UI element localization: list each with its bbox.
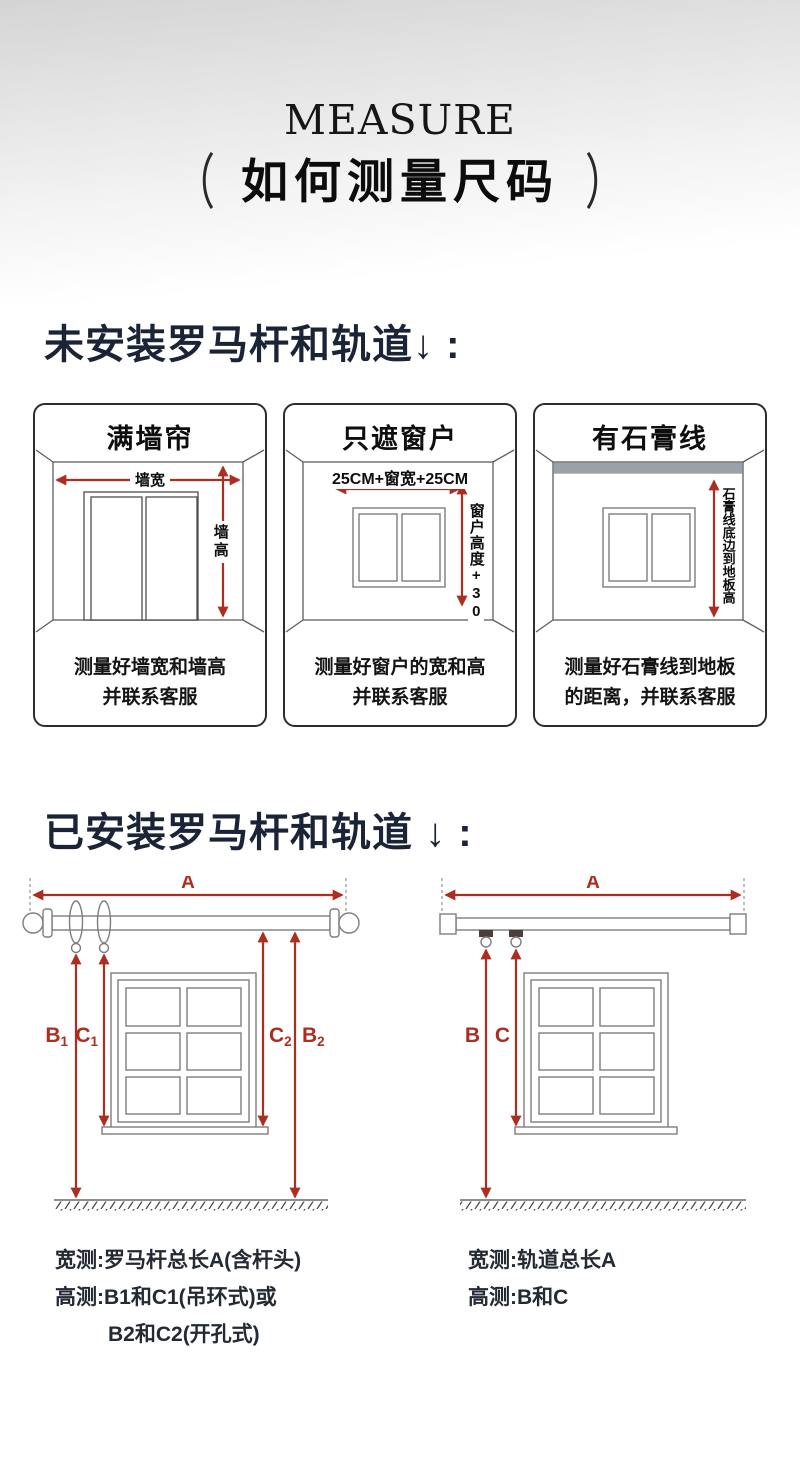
section2-heading: 已安装罗马杆和轨道 ↓ : [44, 800, 473, 858]
note-line: 宽测:罗马杆总长A(含杆头) [55, 1242, 301, 1279]
window-pane [539, 988, 593, 1026]
wall-height-label: 墙高 [212, 521, 228, 563]
box-caption: 测量好石膏线到地板 的距离，并联系客服 [535, 653, 765, 713]
box-caption: 测量好窗户的宽和高 并联系客服 [285, 653, 515, 713]
caption-line: 并联系客服 [285, 683, 515, 713]
window-pane [539, 1033, 593, 1070]
plaster-line-bar [554, 463, 743, 474]
window-width-label-row: 25CM+窗宽+25CM [285, 465, 515, 489]
window-pane [187, 988, 241, 1026]
box-full-wall-curtain: 满墙帘 墙宽 墙高 测量好墙宽和墙高 并联系客服 [33, 403, 267, 727]
corner-line [243, 620, 264, 632]
rod-right-finial [339, 913, 359, 933]
c-label: C [495, 1024, 510, 1047]
note-line: 高测:B和C [468, 1279, 616, 1316]
page-title: 如何测量尺码 [241, 143, 559, 212]
b2-label: B2 [302, 1024, 325, 1049]
window-pane [126, 1077, 180, 1114]
track-glider [479, 930, 493, 937]
eyebrow-text: MEASURE [0, 96, 800, 144]
measure-option-boxes: 满墙帘 墙宽 墙高 测量好墙宽和墙高 并联系客服 [33, 403, 767, 727]
rod-measure-notes: 宽测:罗马杆总长A(含杆头) 高测:B1和C1(吊环式)或 B2和C2(开孔式) [55, 1242, 301, 1353]
caption-line: 测量好墙宽和墙高 [35, 653, 265, 683]
door-left-panel [91, 497, 142, 620]
box-caption: 测量好墙宽和墙高 并联系客服 [35, 653, 265, 713]
wall-width-label: 墙宽 [130, 469, 170, 490]
track-measure-notes: 宽测:轨道总长A 高测:B和C [468, 1242, 616, 1316]
window-sill [102, 1127, 268, 1134]
rod-left-finial [23, 913, 43, 933]
window-pane [126, 1033, 180, 1070]
glider-ring [481, 937, 491, 947]
window-pane [187, 1033, 241, 1070]
section1-heading: 未安装罗马杆和轨道↓ : [44, 312, 460, 370]
window-sill [515, 1127, 677, 1134]
measure-guide-page: MEASURE （ 如何测量尺码 ） 未安装罗马杆和轨道↓ : 满墙帘 [0, 0, 800, 1476]
window-pane [539, 1077, 593, 1114]
rod-right-disc [330, 909, 339, 937]
corner-line [493, 620, 514, 632]
window-height-label: 窗户高度+30 [468, 500, 484, 624]
caption-line: 的距离，并联系客服 [535, 683, 765, 713]
box-plaster-line: 有石膏线 石膏线底边到地板高 测量好石膏线到地板 的距离，并联系客服 [533, 403, 767, 727]
window-pane [600, 1077, 654, 1114]
window-right-pane [402, 514, 440, 581]
floor-hatch [460, 1202, 746, 1211]
note-line: B2和C2(开孔式) [55, 1316, 301, 1353]
note-line: 宽测:轨道总长A [468, 1242, 616, 1279]
note-line: 高测:B1和C1(吊环式)或 [55, 1279, 301, 1316]
window-right-pane [652, 514, 690, 581]
track-glider [509, 930, 523, 937]
box-title: 有石膏线 [535, 417, 765, 456]
rod-bar [52, 916, 330, 930]
rod-left-disc [43, 909, 52, 937]
track-bar [456, 918, 730, 930]
window-width-label: 25CM+窗宽+25CM [327, 465, 473, 489]
page-title-row: （ 如何测量尺码 ） [0, 143, 800, 212]
roman-rod-diagram: A B1 C1 C2 B2 [18, 876, 393, 1221]
corner-line [286, 620, 303, 632]
box-title: 只遮窗户 [285, 417, 515, 456]
left-paren-decoration: （ [175, 134, 215, 221]
floor-hatch [54, 1202, 328, 1211]
corner-line [536, 620, 553, 632]
b1-label: B1 [45, 1024, 68, 1049]
track-right-cap [730, 914, 746, 934]
door-right-panel [146, 497, 197, 620]
wall-width-label-row: 墙宽 [35, 469, 265, 490]
box-window-only: 只遮窗户 25CM+窗宽+25CM 窗户高度+30 测量好窗户的宽和高 并联系客… [283, 403, 517, 727]
glider-ring [511, 937, 521, 947]
track-diagram: A B C [428, 876, 788, 1221]
window-left-pane [609, 514, 647, 581]
caption-line: 并联系客服 [35, 683, 265, 713]
b-label: B [465, 1024, 480, 1047]
track-length-label: A [586, 876, 600, 893]
ring-hook [72, 944, 81, 953]
c2-label: C2 [269, 1024, 292, 1049]
caption-line: 测量好石膏线到地板 [535, 653, 765, 683]
window-pane [126, 988, 180, 1026]
window-pane [187, 1077, 241, 1114]
window-pane [600, 1033, 654, 1070]
c1-label: C1 [75, 1024, 98, 1049]
caption-line: 测量好窗户的宽和高 [285, 653, 515, 683]
right-paren-decoration: ） [585, 134, 625, 221]
plaster-height-label: 石膏线底边到地板高 [721, 484, 735, 607]
box-title: 满墙帘 [35, 417, 265, 456]
rod-length-label: A [181, 876, 195, 893]
corner-line [743, 620, 764, 632]
corner-line [36, 620, 53, 632]
ring-hook [100, 944, 109, 953]
window-left-pane [359, 514, 397, 581]
window-pane [600, 988, 654, 1026]
track-left-cap [440, 914, 456, 934]
